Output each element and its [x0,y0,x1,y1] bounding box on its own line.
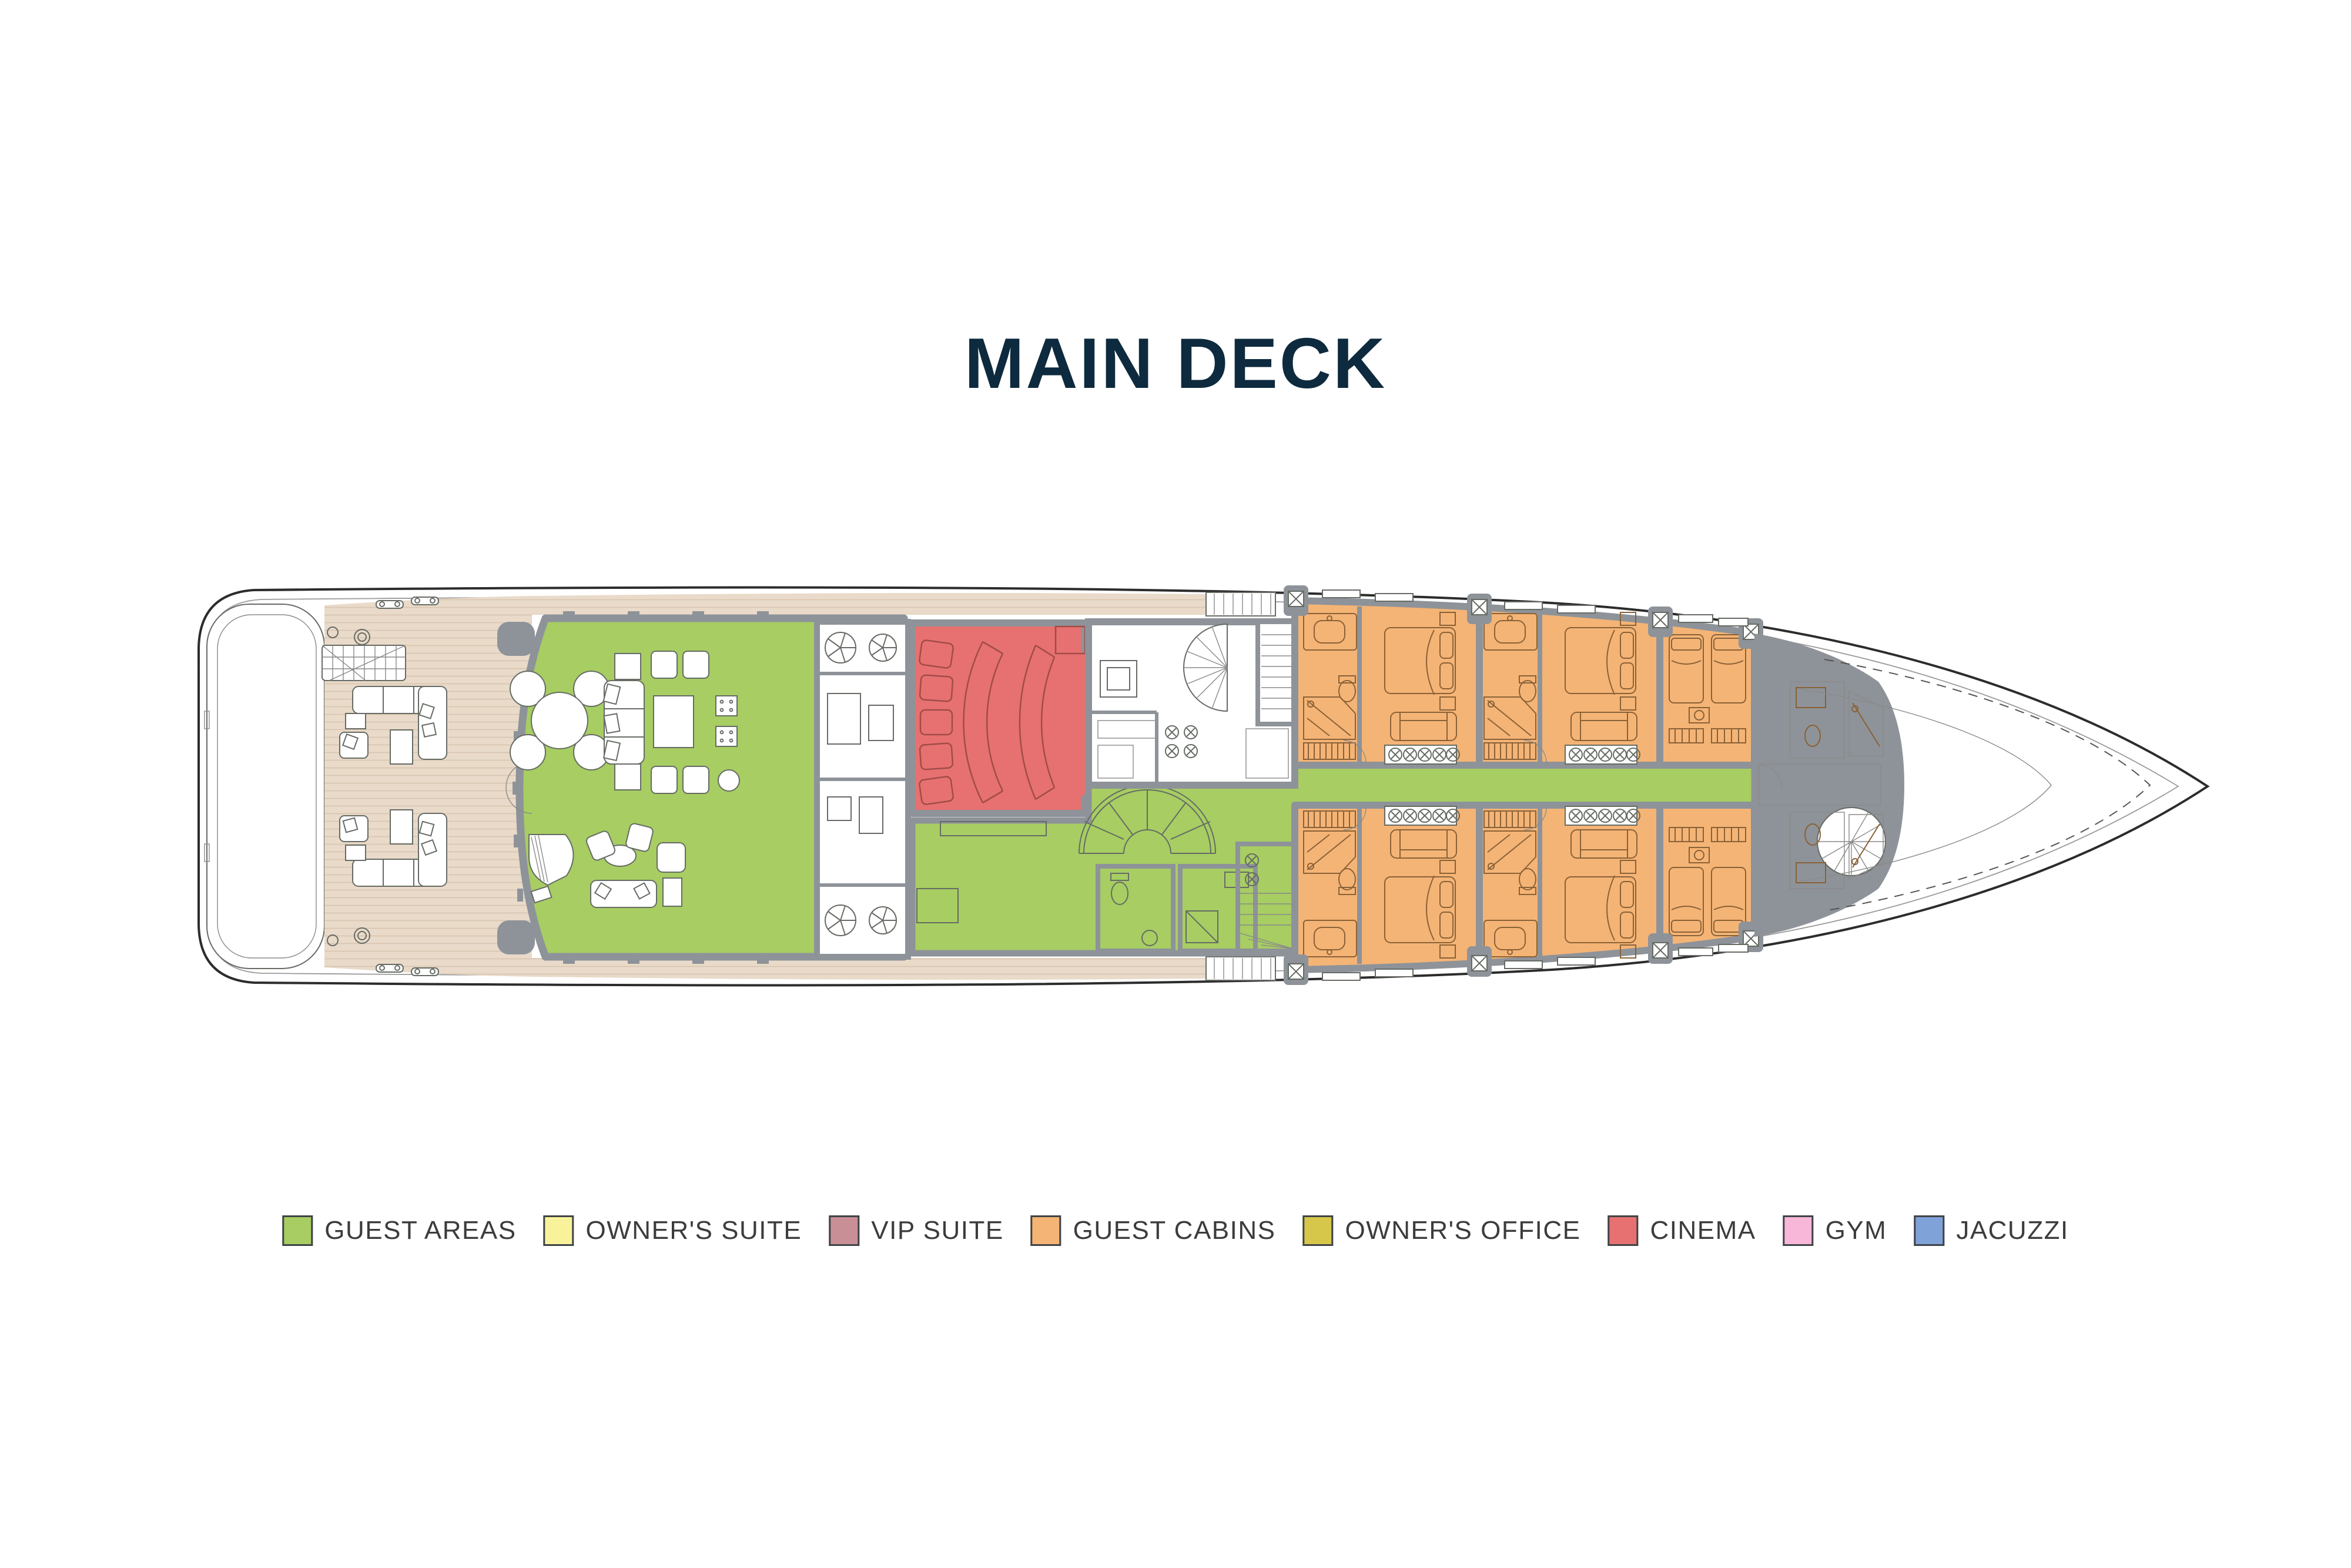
cinema-swatch [1607,1215,1638,1246]
galley-block [1089,622,1295,785]
boarding-hatch-bottom [1206,957,1275,980]
cinema-zone [912,623,1100,813]
owners-office-label: OWNER'S OFFICE [1345,1216,1581,1245]
stern-platform [205,604,324,969]
jacuzzi-label: JACUZZI [1956,1216,2068,1245]
owners-suite-label: OWNER'S SUITE [586,1216,802,1245]
guest-cabins-bottom-row [1284,805,1763,985]
legend-item-owners-suite: OWNER'S SUITE [544,1215,802,1246]
guest-cabins-swatch [1031,1215,1061,1246]
jacuzzi-swatch [1914,1215,1944,1246]
legend-item-gym: GYM [1783,1215,1887,1246]
legend-item-owners-office: OWNER'S OFFICE [1303,1215,1581,1246]
legend-item-cinema: CINEMA [1607,1215,1756,1246]
legend-item-vip-suite: VIP SUITE [829,1215,1003,1246]
gym-swatch [1783,1215,1814,1246]
guest-cabins-label: GUEST CABINS [1073,1216,1276,1245]
guest-areas-label: GUEST AREAS [324,1216,516,1245]
vip-suite-label: VIP SUITE [871,1216,1003,1245]
gym-label: GYM [1826,1216,1887,1245]
boarding-hatch-top [1206,592,1275,616]
owners-suite-swatch [544,1215,574,1246]
deck-plan-svg [0,0,2351,1568]
guest-areas-swatch [282,1215,313,1246]
legend: GUEST AREASOWNER'S SUITEVIP SUITEGUEST C… [282,1215,2068,1246]
legend-item-jacuzzi: JACUZZI [1914,1215,2068,1246]
legend-item-guest-cabins: GUEST CABINS [1031,1215,1276,1246]
owners-office-swatch [1303,1215,1334,1246]
legend-item-guest-areas: GUEST AREAS [282,1215,516,1246]
service-block [817,622,908,957]
vip-suite-swatch [829,1215,859,1246]
cinema-label: CINEMA [1650,1216,1756,1245]
guest-cabins-top-row [1284,585,1763,765]
